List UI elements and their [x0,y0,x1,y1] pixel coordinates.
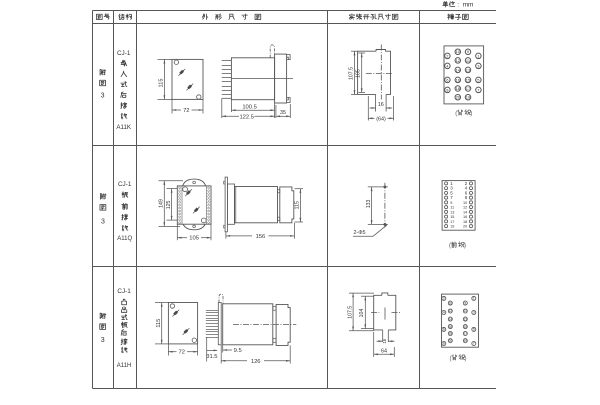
svg-text:A11K: A11K [116,124,132,131]
svg-text:107.5: 107.5 [347,306,353,319]
svg-text:107.5: 107.5 [349,67,355,80]
svg-text:10: 10 [448,301,452,305]
svg-text:11: 11 [464,309,468,313]
svg-text:12: 12 [456,58,461,63]
svg-text:126: 126 [251,359,261,365]
svg-text:31.5: 31.5 [206,354,217,360]
svg-text:(: ( [449,243,451,249]
svg-text:149: 149 [159,199,165,208]
svg-text:9: 9 [450,201,452,205]
svg-text:16: 16 [382,338,387,343]
svg-text:14: 14 [456,67,461,72]
svg-text:CJ-1: CJ-1 [117,288,131,295]
svg-text:3: 3 [101,337,105,344]
svg-text:19: 19 [463,339,467,343]
svg-text:19: 19 [466,95,471,100]
svg-text:72: 72 [178,350,184,356]
svg-text:8: 8 [443,342,445,346]
svg-text:2-Φ5: 2-Φ5 [353,230,365,236]
svg-text:16: 16 [463,215,467,219]
svg-text:11: 11 [450,206,454,210]
svg-text:12: 12 [448,309,452,313]
svg-text:4: 4 [443,311,445,315]
svg-text:6: 6 [443,328,445,332]
svg-text:115: 115 [159,79,165,88]
svg-text:17: 17 [466,86,471,91]
svg-text:20: 20 [448,339,452,343]
svg-text:): ) [465,356,467,362]
svg-text:18: 18 [463,220,467,224]
svg-text:105: 105 [355,69,361,78]
svg-text:15: 15 [466,77,471,82]
svg-text:13: 13 [463,317,467,321]
svg-text:10: 10 [463,201,467,205]
svg-text:125: 125 [166,200,172,209]
svg-text:17: 17 [450,220,454,224]
svg-text:CJ-1: CJ-1 [118,181,132,188]
svg-text:): ) [470,111,472,117]
svg-text:A11Q: A11Q [117,236,132,242]
svg-text:1: 1 [473,297,475,301]
svg-text:3: 3 [101,219,105,226]
svg-text:133: 133 [366,199,372,208]
svg-text:16: 16 [448,325,452,329]
svg-text:105: 105 [189,236,199,242]
svg-text:156: 156 [256,234,266,240]
svg-text:17: 17 [463,332,467,336]
svg-text:16: 16 [378,102,384,108]
svg-text:2: 2 [443,297,445,301]
svg-text:mm: mm [463,2,474,9]
svg-text:(: ( [450,356,452,362]
svg-text:15: 15 [463,325,467,329]
svg-text:10: 10 [456,49,461,54]
svg-text:12: 12 [463,206,467,210]
svg-text:13: 13 [450,210,454,214]
svg-text:13: 13 [466,67,471,72]
svg-text:18: 18 [456,86,461,91]
svg-text:9.5: 9.5 [234,348,242,354]
svg-text:3: 3 [473,311,475,315]
svg-text:18: 18 [448,332,452,336]
svg-text:): ) [464,243,466,249]
svg-text:7: 7 [473,342,475,346]
svg-text:16: 16 [456,77,461,82]
svg-text:20: 20 [456,95,461,100]
svg-text:115: 115 [295,201,301,209]
svg-text:72: 72 [183,108,189,114]
svg-text:35: 35 [280,110,286,116]
svg-text:115: 115 [156,319,162,328]
svg-text:(: ( [455,111,457,117]
svg-text:64: 64 [381,349,387,355]
svg-text:20: 20 [463,225,467,229]
svg-text:14: 14 [463,210,467,214]
svg-text:14: 14 [448,317,452,321]
svg-text:15: 15 [450,215,454,219]
svg-text:3: 3 [101,92,105,99]
svg-text:A11H: A11H [117,363,132,369]
svg-text:100.5: 100.5 [242,104,257,110]
svg-text:CJ-1: CJ-1 [117,50,131,57]
svg-text:(64): (64) [376,116,386,122]
svg-text:19: 19 [450,225,454,229]
svg-text::: : [457,2,459,9]
svg-text:5: 5 [473,328,475,332]
svg-text:9: 9 [464,301,466,305]
svg-text:122.5: 122.5 [239,114,254,120]
svg-text:104: 104 [359,309,365,318]
